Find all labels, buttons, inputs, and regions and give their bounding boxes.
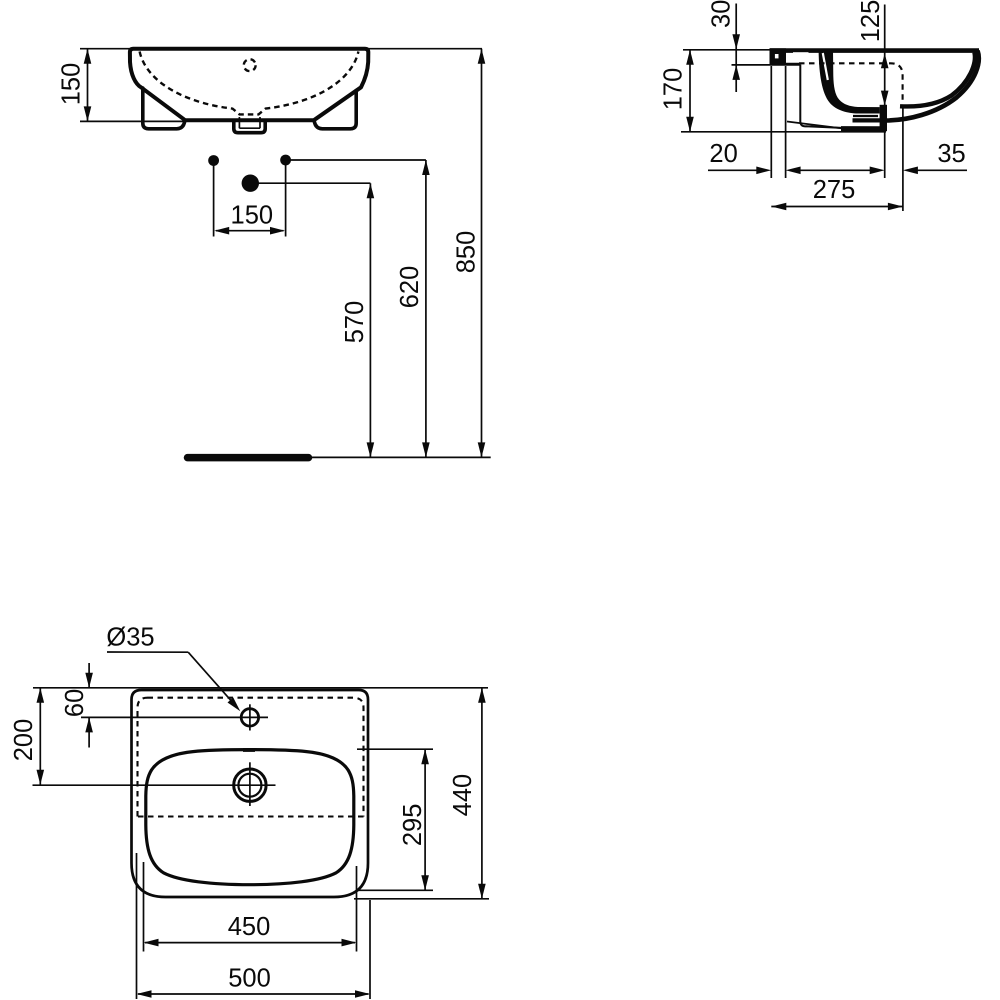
- svg-text:35: 35: [937, 140, 965, 168]
- svg-text:850: 850: [453, 231, 481, 274]
- svg-text:Ø35: Ø35: [106, 623, 154, 651]
- svg-text:450: 450: [228, 913, 271, 941]
- svg-text:150: 150: [231, 202, 274, 230]
- svg-text:125: 125: [857, 0, 885, 42]
- svg-text:30: 30: [708, 0, 736, 28]
- svg-text:200: 200: [10, 719, 38, 762]
- svg-text:60: 60: [61, 689, 89, 717]
- svg-text:150: 150: [57, 63, 85, 106]
- svg-text:570: 570: [341, 301, 369, 344]
- svg-text:20: 20: [709, 140, 737, 168]
- svg-text:275: 275: [813, 176, 856, 204]
- svg-text:500: 500: [228, 964, 271, 992]
- svg-text:295: 295: [399, 804, 427, 847]
- svg-text:620: 620: [396, 266, 424, 309]
- svg-text:440: 440: [449, 774, 477, 817]
- svg-text:170: 170: [660, 68, 688, 111]
